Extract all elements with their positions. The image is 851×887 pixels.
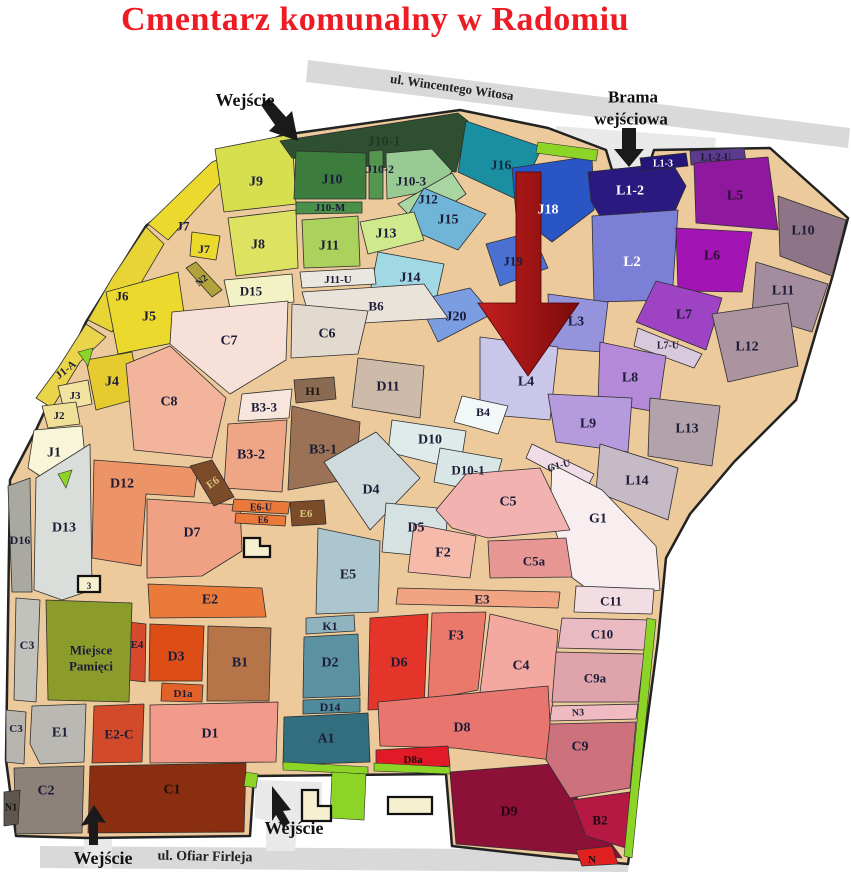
label-j7b: J7 — [198, 242, 210, 256]
label-e4: E4 — [131, 639, 144, 651]
label-l12sec: L12 — [735, 340, 758, 355]
label-j12: J12 — [418, 192, 438, 207]
label-d8a: D8a — [404, 754, 423, 766]
label-b6: B6 — [368, 299, 384, 314]
entrance-label-1: Brama — [608, 88, 659, 107]
label-n1: N1 — [5, 803, 17, 814]
label-l5: L5 — [727, 189, 743, 204]
label-l6: L6 — [704, 249, 720, 264]
label-b1: B1 — [232, 656, 248, 671]
label-j10: J10 — [322, 173, 343, 188]
label-l3: L3 — [568, 315, 584, 330]
extra-label-2: 3 — [87, 581, 92, 591]
label-e1: E1 — [52, 726, 68, 741]
label-d1: D1 — [201, 727, 218, 742]
label-b32: B3-2 — [237, 448, 265, 463]
label-d14: D14 — [320, 700, 341, 714]
label-c1: C1 — [163, 783, 180, 798]
label-c5a: C5a — [523, 554, 546, 569]
label-d15: D15 — [240, 284, 263, 299]
cemetery-map: J7J7J6J1-AJ9J8J5J4J3J2J1N2D15J10-1J10J10… — [0, 0, 851, 887]
label-k1: K1 — [322, 619, 337, 633]
label-c2: C2 — [37, 784, 54, 799]
label-d16: D16 — [10, 533, 31, 547]
label-l11: L11 — [772, 284, 795, 299]
label-f3: F3 — [448, 629, 464, 644]
label-d3: D3 — [167, 650, 184, 665]
label-d5: D5 — [407, 521, 424, 536]
label-c9: C9 — [571, 740, 588, 755]
label-c4: C4 — [512, 659, 529, 674]
label-l13s: L1-3 — [653, 159, 673, 170]
label-c10: C10 — [591, 627, 613, 642]
entrance-label-3: Wejście — [74, 848, 133, 868]
label-c9a: C9a — [584, 671, 607, 686]
green-patch — [330, 772, 366, 820]
label-l10: L10 — [791, 224, 814, 239]
label-l8: L8 — [622, 371, 638, 386]
label-j20: J20 — [446, 310, 467, 325]
label-c6: C6 — [318, 327, 335, 342]
label-j10m: J10-M — [315, 202, 346, 214]
label-e2: E2 — [202, 593, 218, 608]
label-b2: B2 — [592, 813, 607, 828]
label-j13: J13 — [376, 227, 397, 242]
label-d11: D11 — [376, 380, 399, 395]
cemetery-map-page: Cmentarz komunalny w Radomiu J7J7J6J1-AJ… — [0, 0, 851, 887]
label-l14: L14 — [625, 474, 648, 489]
entrance-label-2: wejściowa — [594, 110, 668, 129]
label-a1: A1 — [317, 732, 334, 747]
label-e5: E5 — [340, 568, 356, 583]
entrance-label-0: Wejście — [216, 90, 275, 110]
green-patch — [244, 772, 258, 788]
label-n3: N3 — [572, 707, 585, 719]
label-e6u: E6-U — [250, 503, 272, 514]
label-b4: B4 — [476, 405, 490, 419]
label-l12s: L1-2 — [616, 184, 644, 199]
label-j7a: J7 — [177, 219, 191, 234]
building — [302, 790, 331, 821]
label-d7: D7 — [183, 526, 200, 541]
label-j2: J2 — [54, 410, 66, 422]
label-h1: H1 — [305, 384, 320, 398]
label-l7: L7 — [676, 308, 692, 323]
label-e6b: E6 — [300, 508, 313, 520]
label-j6: J6 — [116, 289, 130, 304]
label-j5: J5 — [142, 310, 156, 325]
label-j16: J16 — [491, 159, 512, 174]
label-l12u: L1-2-U — [701, 153, 732, 164]
label-d12: D12 — [110, 477, 134, 492]
label-d1a: D1a — [174, 688, 193, 700]
label-j4: J4 — [105, 375, 119, 390]
label-j19: J19 — [503, 254, 523, 269]
label-d9: D9 — [500, 805, 517, 820]
label-l7u: L7-U — [657, 341, 679, 352]
label-c3a: C3 — [20, 638, 35, 652]
extra-label-1: Pamięci — [69, 659, 113, 674]
label-e2c: E2-C — [105, 727, 134, 742]
section-nsec — [576, 846, 618, 866]
label-j11u: J11-U — [324, 274, 352, 286]
label-l2: L2 — [623, 254, 641, 270]
label-e6s: E6 — [258, 515, 269, 525]
label-d4: D4 — [362, 483, 379, 498]
label-b31: B3-1 — [309, 443, 337, 458]
label-c8: C8 — [160, 395, 177, 410]
label-c5: C5 — [499, 495, 516, 510]
label-j102: J10-2 — [366, 162, 394, 176]
label-c3b: C3 — [9, 723, 23, 735]
label-d10: D10 — [418, 433, 442, 448]
section-n3 — [550, 704, 638, 721]
label-j9: J9 — [249, 175, 263, 190]
building — [388, 797, 432, 814]
label-l4: L4 — [518, 375, 534, 390]
section-c1 — [88, 763, 246, 833]
label-c7: C7 — [220, 334, 237, 349]
extra-label-0: Miejsce — [70, 643, 113, 658]
label-j1: J1 — [47, 446, 61, 461]
label-j101: J10-1 — [368, 135, 401, 150]
label-b33: B3-3 — [251, 400, 278, 415]
section-f3 — [428, 612, 486, 700]
label-f2: F2 — [435, 546, 451, 561]
label-j14: J14 — [400, 271, 421, 286]
label-j18: J18 — [538, 203, 559, 218]
label-g1: G1 — [589, 512, 607, 527]
label-j103: J10-3 — [396, 174, 427, 189]
label-d8: D8 — [453, 721, 470, 736]
entrance-label-4: Wejście — [265, 818, 324, 838]
label-l13sec: L13 — [675, 422, 698, 437]
section-c2 — [14, 766, 84, 834]
label-nsec: N — [588, 854, 596, 866]
label-d2: D2 — [321, 656, 338, 671]
label-j8: J8 — [251, 238, 265, 253]
label-d13: D13 — [52, 521, 76, 536]
label-j3: J3 — [70, 390, 82, 402]
label-j11: J11 — [319, 239, 339, 254]
label-j15: J15 — [438, 213, 459, 228]
label-d101: D10-1 — [451, 463, 484, 478]
label-d6: D6 — [390, 656, 407, 671]
street-label-1: ul. Ofiar Firleja — [157, 849, 252, 866]
label-l9: L9 — [580, 417, 596, 432]
label-c11: C11 — [600, 594, 622, 609]
label-e3: E3 — [474, 592, 490, 607]
section-c3b — [6, 710, 26, 764]
